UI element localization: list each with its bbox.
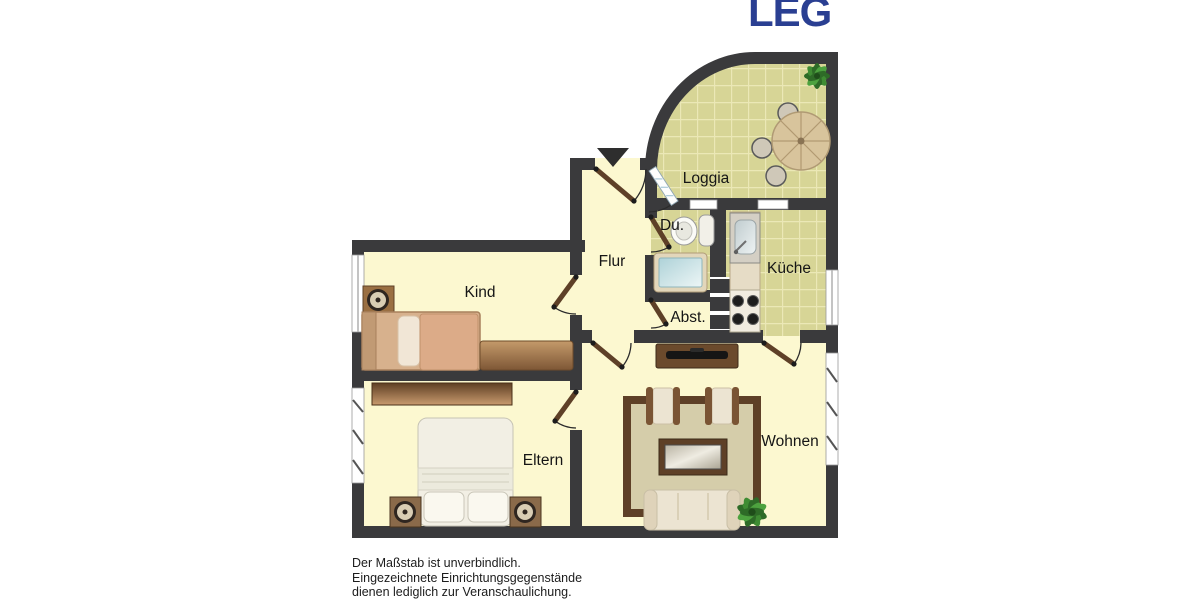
- duct-shaft: [710, 277, 732, 330]
- wall-loggia-top: [755, 52, 838, 64]
- wall-flur-left-upper: [570, 158, 582, 252]
- label-wohnen: Wohnen: [761, 433, 818, 450]
- armchair-icon: [705, 387, 739, 425]
- shower-tub-icon: [654, 253, 707, 292]
- label-kueche: Küche: [767, 260, 811, 277]
- coffee-table-icon: [659, 439, 727, 475]
- double-bed-icon: [418, 418, 513, 526]
- floor-plan-drawing: Loggia Du. Küche Flur Kind Abst. Eltern …: [0, 0, 1200, 600]
- loggia-window-1: [690, 200, 717, 209]
- wall-kind-top: [352, 240, 585, 252]
- floor-plan-page: LEG: [0, 0, 1200, 600]
- chair-icon: [766, 166, 786, 186]
- wardrobe-icon: [372, 383, 512, 405]
- wall-entrance-left-stub: [570, 158, 595, 170]
- label-abstellraum: Abst.: [670, 309, 705, 326]
- label-dusche: Du.: [660, 217, 684, 234]
- wall-eltern-wohnen: [570, 430, 582, 526]
- plant-icon: [804, 63, 830, 89]
- kueche-window: [826, 270, 838, 325]
- wall-abst-bottom: [634, 330, 710, 343]
- disclaimer-line-2: Eingezeichnete Einrichtungsgegenstände: [352, 571, 582, 586]
- sofa-icon: [644, 490, 740, 530]
- wall-kueche-bottom-right: [800, 330, 826, 343]
- single-bed-icon: [362, 312, 480, 370]
- sink-icon: [730, 213, 760, 263]
- disclaimer: Der Maßstab ist unverbindlich. Eingezeic…: [352, 556, 582, 600]
- armchair-icon: [646, 387, 680, 425]
- disclaimer-line-1: Der Maßstab ist unverbindlich.: [352, 556, 582, 571]
- stove-icon: [730, 290, 760, 332]
- nightstand-icon: [510, 497, 541, 527]
- parasol-icon: [772, 112, 830, 170]
- label-loggia: Loggia: [683, 170, 730, 187]
- wall-flur-bottom-left: [570, 330, 592, 343]
- label-eltern: Eltern: [523, 452, 564, 469]
- chair-icon: [752, 138, 772, 158]
- wohnen-window: [826, 353, 838, 465]
- loggia-window-2: [758, 200, 788, 209]
- nightstand-icon: [363, 286, 394, 315]
- sideboard-icon: [480, 341, 573, 370]
- label-flur: Flur: [599, 253, 626, 270]
- wall-eltern-door-upper: [570, 381, 582, 390]
- tv-sideboard-icon: [656, 344, 738, 368]
- nightstand-icon: [390, 497, 421, 527]
- wall-kind-door-upper: [570, 252, 582, 275]
- wall-shaft-bottom: [710, 330, 732, 343]
- wall-bottom-outer: [352, 526, 838, 538]
- kueche-fixtures: [730, 212, 760, 332]
- eltern-window: [352, 388, 364, 483]
- disclaimer-line-3: dienen lediglich zur Veranschaulichung.: [352, 585, 582, 600]
- label-kind: Kind: [464, 284, 495, 301]
